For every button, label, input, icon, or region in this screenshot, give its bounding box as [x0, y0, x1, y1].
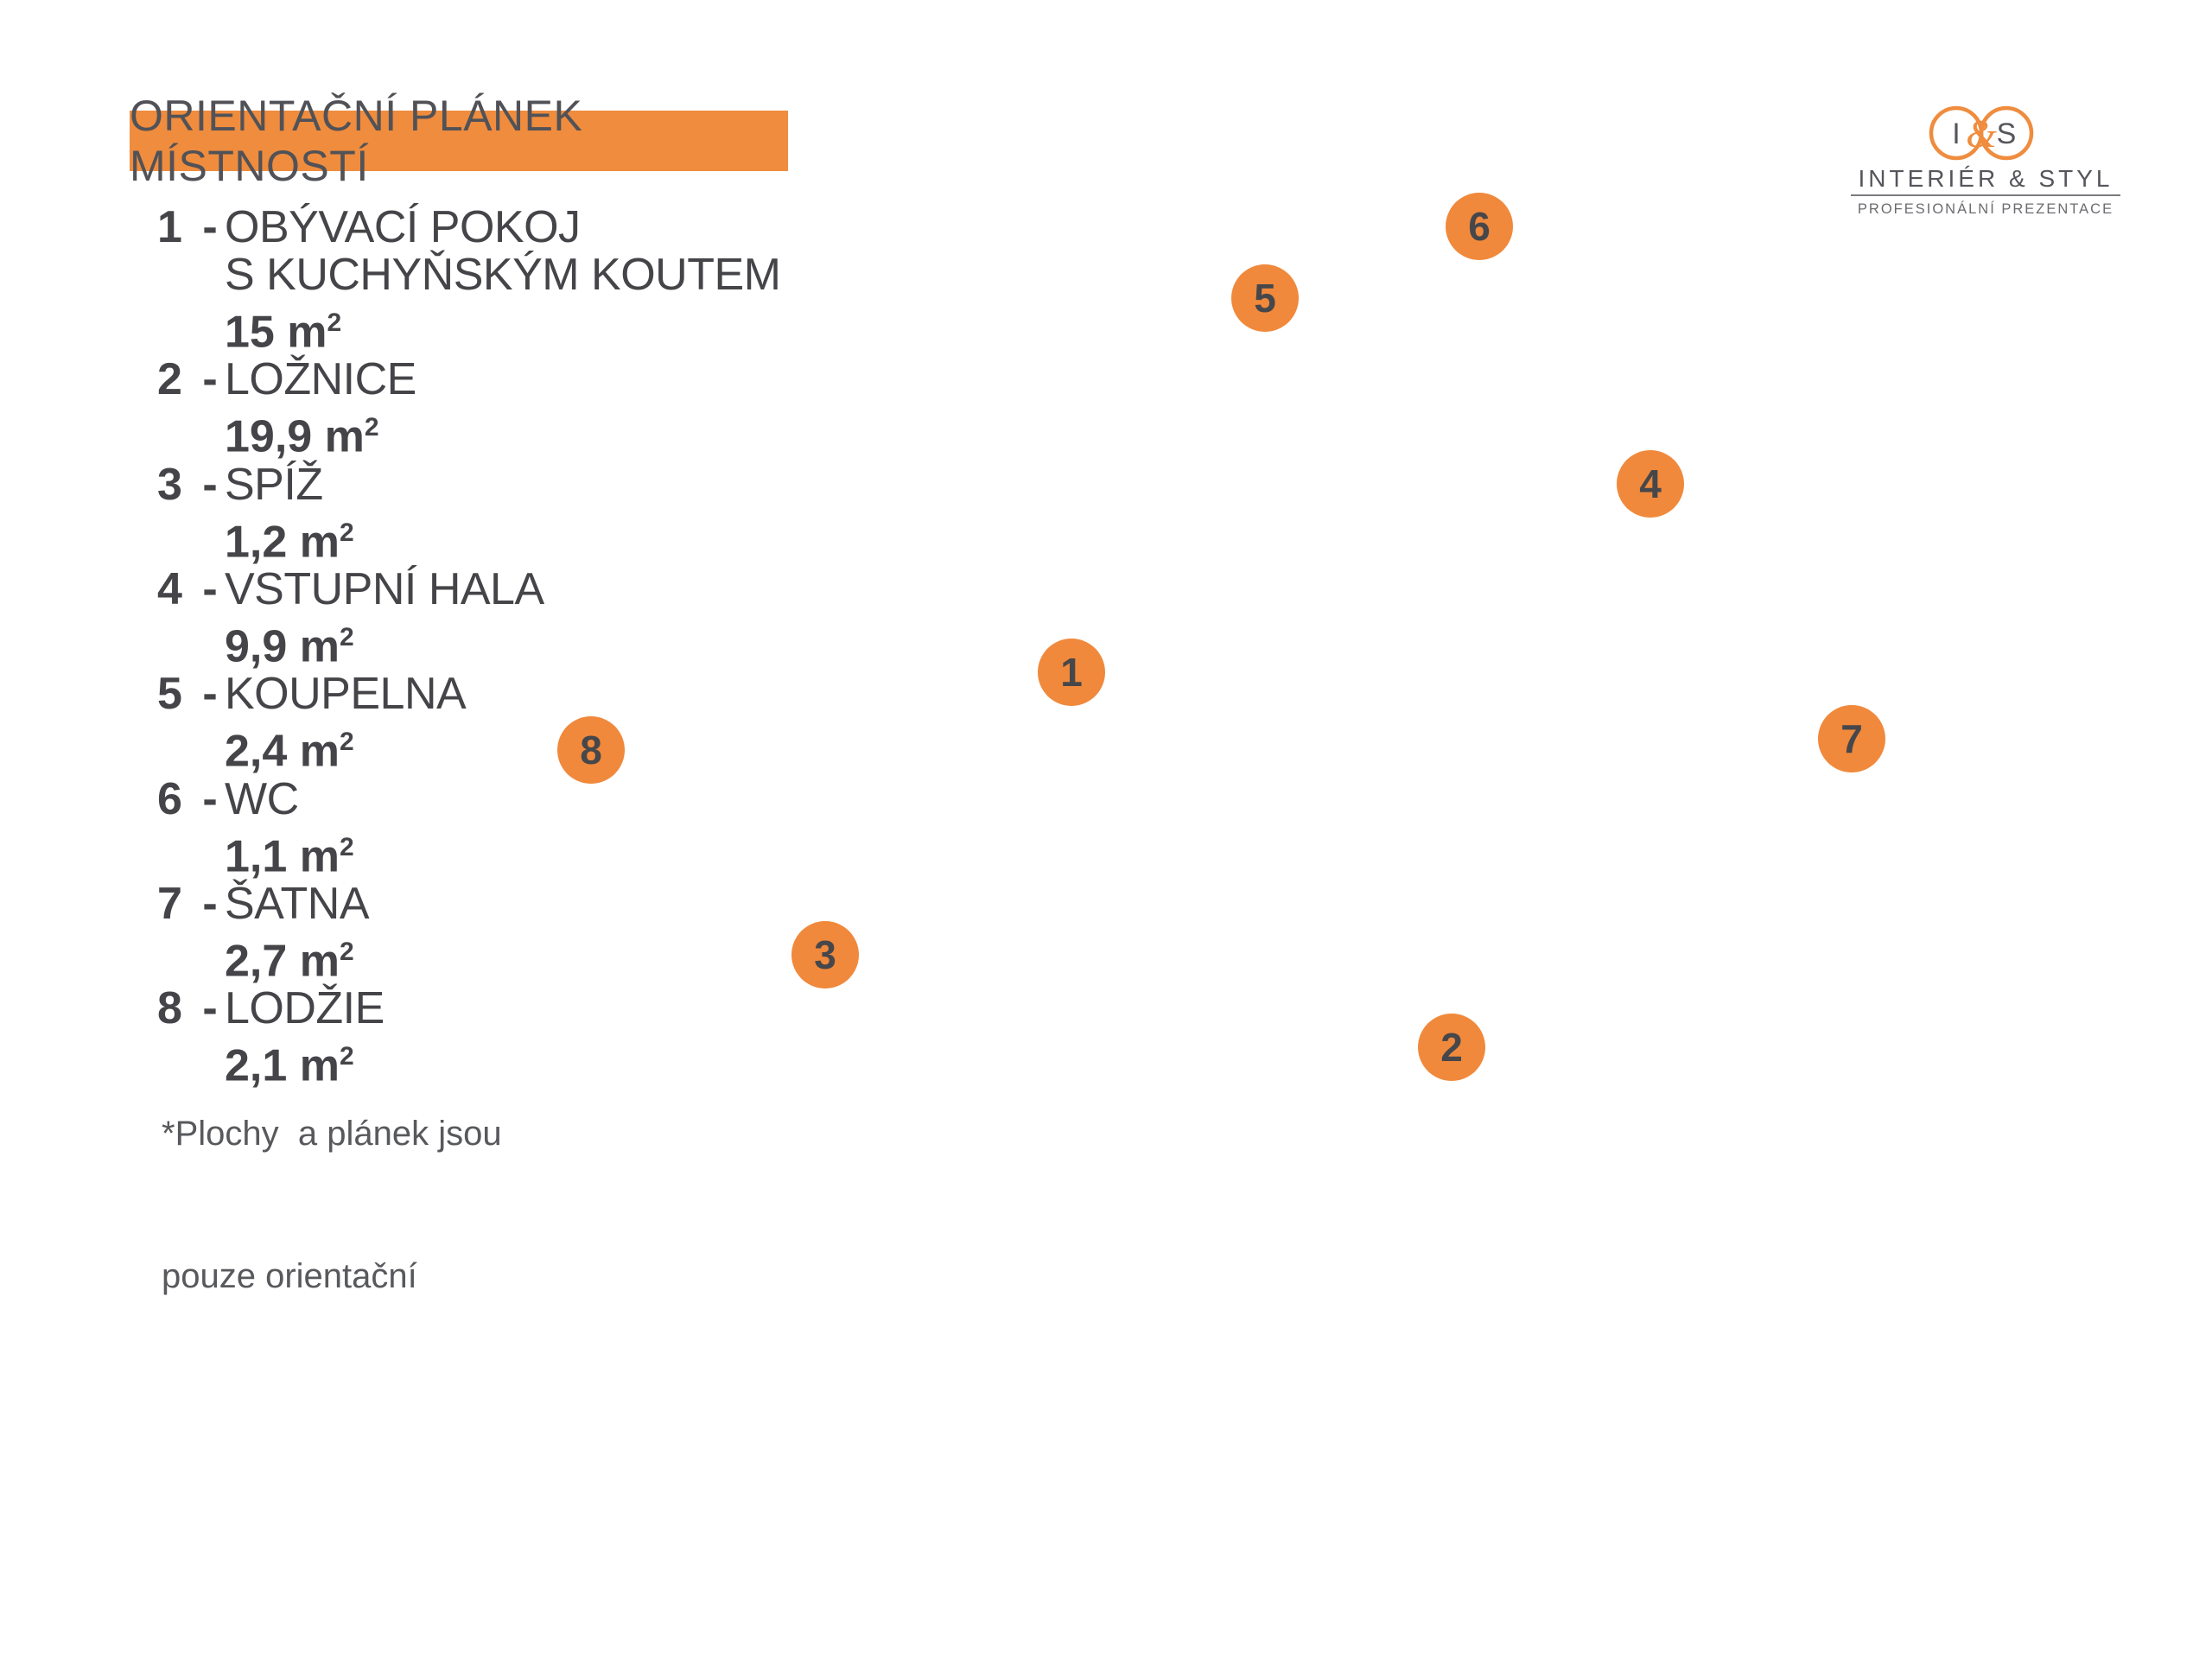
legend-dash: - — [195, 776, 225, 880]
legend-item-1: 1 - OBÝVACÍ POKOJ S KUCHYŇSKÝM KOUTEM 15… — [157, 204, 780, 356]
legend-item-2: 2 - LOŽNICE 19,9 m2 — [157, 356, 780, 461]
room-marker-bathroom: 5 — [1231, 264, 1299, 332]
legend-dash: - — [195, 566, 225, 671]
footnote-line1: *Plochy a plánek jsou — [162, 1110, 502, 1158]
legend-item-4: 4 - VSTUPNÍ HALA 9,9 m2 — [157, 566, 780, 671]
legend-room-name: WC — [225, 776, 780, 823]
legend-dash: - — [195, 204, 225, 356]
legend-num: 7 — [157, 880, 195, 985]
legend-item-7: 7 - ŠATNA 2,7 m2 — [157, 880, 780, 985]
legend-room-area: 2,4 m2 — [225, 718, 780, 775]
legend-num: 4 — [157, 566, 195, 671]
legend-item-6: 6 - WC 1,1 m2 — [157, 776, 780, 880]
room-marker-pantry: 3 — [791, 921, 859, 988]
legend-room-name: SPÍŽ — [225, 461, 780, 509]
legend-room-name: ŠATNA — [225, 880, 780, 928]
legend-room-name: OBÝVACÍ POKOJ — [225, 204, 780, 251]
room-marker-closet: 7 — [1818, 705, 1885, 772]
legend-dash: - — [195, 356, 225, 461]
footnote-line2: pouze orientační — [162, 1253, 502, 1300]
legend-room-area: 1,1 m2 — [225, 823, 780, 880]
legend-item-3: 3 - SPÍŽ 1,2 m2 — [157, 461, 780, 566]
legend-room-name: LOŽNICE — [225, 356, 780, 404]
legend-room-area: 1,2 m2 — [225, 509, 780, 566]
logo-company-name: INTERIÉR & STYL — [1859, 165, 2113, 192]
room-marker-loggia: 8 — [557, 716, 625, 784]
legend-num: 6 — [157, 776, 195, 880]
room-marker-wc: 6 — [1446, 193, 1513, 260]
legend-room-area: 2,7 m2 — [225, 928, 780, 985]
legend-room-area: 9,9 m2 — [225, 613, 780, 671]
logo-ampersand: & — [1966, 111, 1997, 156]
footnote: *Plochy a plánek jsou pouze orientační — [162, 1015, 502, 1395]
page: ORIENTAČNÍ PLÁNEK MÍSTNOSTÍ 1 - OBÝVACÍ … — [0, 0, 2212, 1659]
legend-dash: - — [195, 880, 225, 985]
logo-letter-i: I — [1952, 118, 1960, 150]
room-marker-living-room: 1 — [1038, 639, 1105, 706]
legend-room-name: KOUPELNA — [225, 671, 780, 718]
legend-num: 1 — [157, 204, 195, 356]
legend-dash: - — [195, 671, 225, 775]
logo-letter-s: S — [1997, 118, 2017, 150]
legend-num: 5 — [157, 671, 195, 775]
legend-num: 2 — [157, 356, 195, 461]
legend-room-name-line2: S KUCHYŇSKÝM KOUTEM — [225, 251, 780, 299]
room-marker-bedroom: 2 — [1418, 1014, 1485, 1081]
legend-dash: - — [195, 461, 225, 566]
company-logo: I & S INTERIÉR & STYL PROFESIONÁLNÍ PREZ… — [1839, 97, 2133, 226]
page-title-banner: ORIENTAČNÍ PLÁNEK MÍSTNOSTÍ — [130, 111, 788, 171]
legend-item-5: 5 - KOUPELNA 2,4 m2 — [157, 671, 780, 775]
room-marker-hall: 4 — [1617, 450, 1684, 518]
logo-tagline: PROFESIONÁLNÍ PREZENTACE — [1858, 200, 2113, 217]
legend-room-name: VSTUPNÍ HALA — [225, 566, 780, 613]
page-title: ORIENTAČNÍ PLÁNEK MÍSTNOSTÍ — [130, 91, 788, 191]
legend-num: 3 — [157, 461, 195, 566]
legend-room-area: 19,9 m2 — [225, 404, 780, 461]
room-legend: 1 - OBÝVACÍ POKOJ S KUCHYŇSKÝM KOUTEM 15… — [157, 204, 780, 1090]
legend-room-area: 15 m2 — [225, 299, 780, 356]
